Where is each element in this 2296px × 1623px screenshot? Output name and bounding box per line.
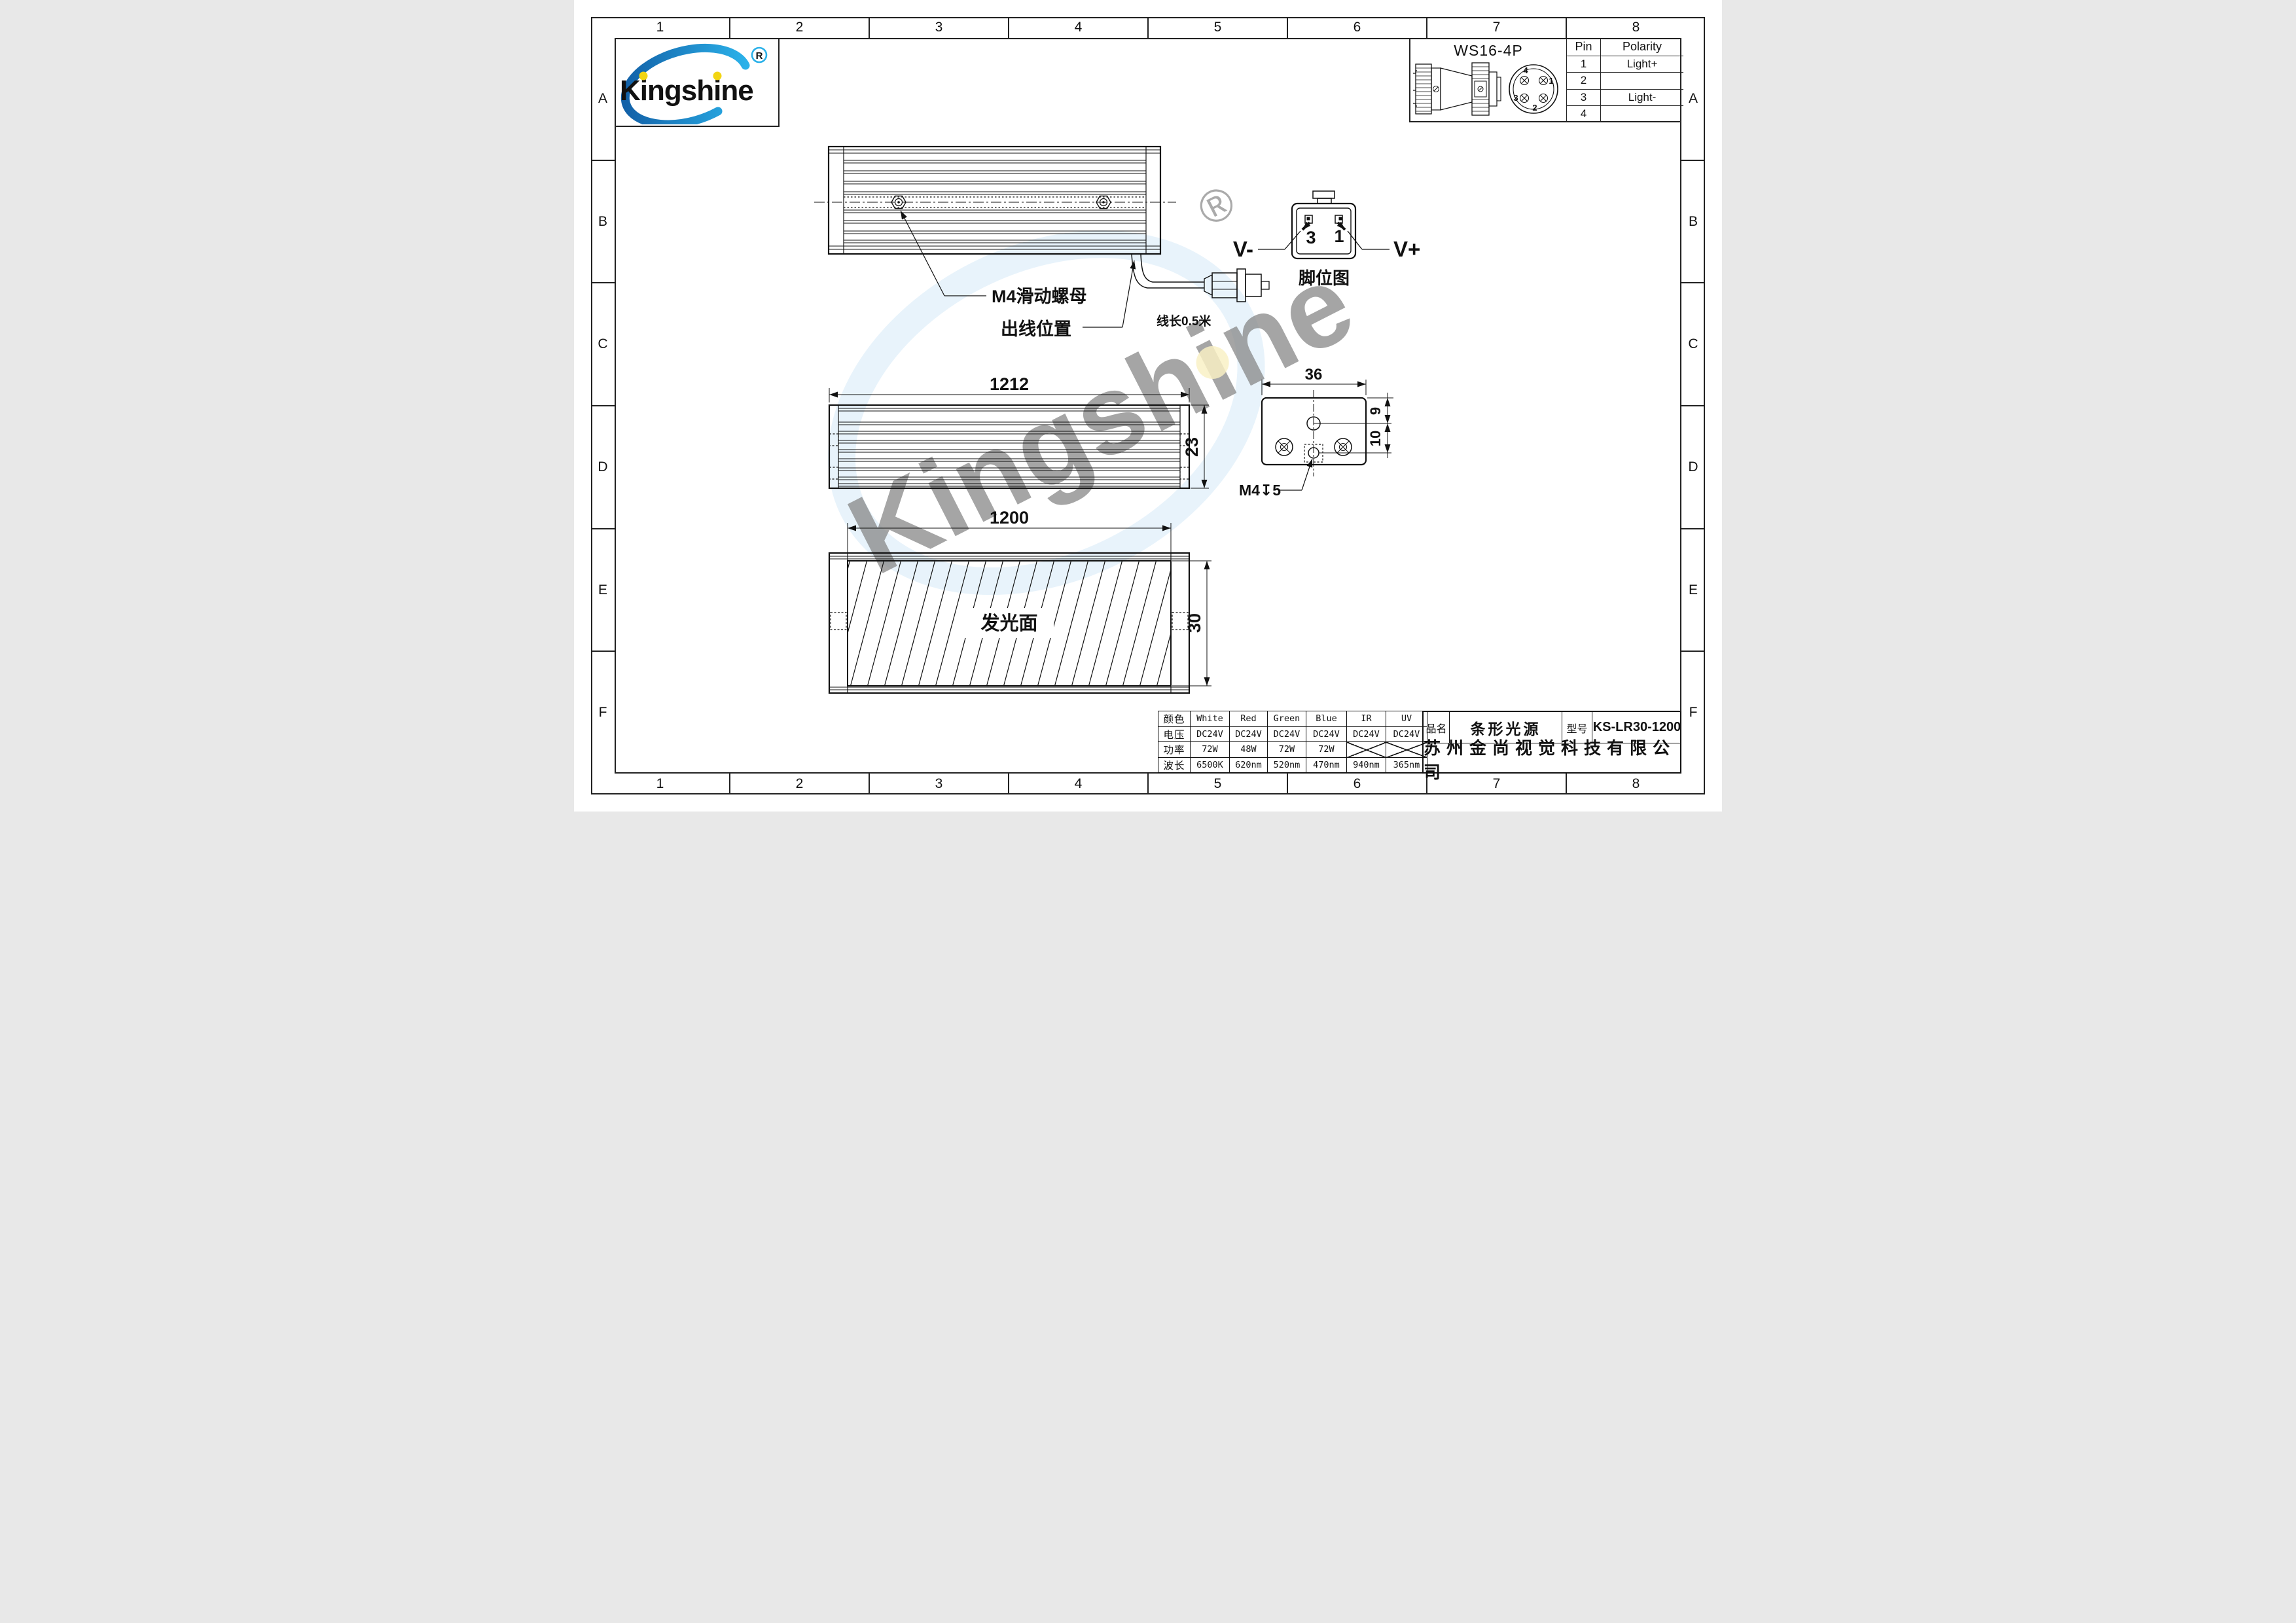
connector-title: WS16-4P xyxy=(1410,42,1566,60)
connector-detail-block: WS16-4P 4 1 3 xyxy=(1409,38,1681,122)
logo-i-dot xyxy=(639,72,648,80)
spec-cell: DC24V xyxy=(1191,726,1230,742)
connector-drawing: 4 1 3 2 xyxy=(1412,59,1566,122)
pin-number-cell: 2 xyxy=(1567,73,1601,89)
spec-cell: UV xyxy=(1386,711,1427,727)
thread-callout-text: M4↧5 xyxy=(1239,482,1281,499)
drawing-canvas: Kingshine ® xyxy=(615,38,1681,774)
logo-text: Kingshine xyxy=(620,75,753,107)
dim-23-text: 23 xyxy=(1182,437,1202,457)
svg-text:®: ® xyxy=(1190,175,1243,236)
spec-cell: DC24V xyxy=(1386,726,1427,742)
screw-hole xyxy=(1276,438,1293,455)
spec-cell: 470nm xyxy=(1306,757,1347,773)
registered-mark-letter: R xyxy=(756,50,763,62)
pin-diagram-drawing xyxy=(1258,191,1390,259)
nut-label: M4滑动螺母 xyxy=(992,287,1087,306)
pin-left-number: 3 xyxy=(1306,228,1316,247)
spec-row-label: 颜色 xyxy=(1158,711,1191,727)
spec-table: 颜色 White Red Green Blue IR UV 电压 DC24V D… xyxy=(1158,711,1427,773)
spec-row-color: 颜色 White Red Green Blue IR UV xyxy=(1158,711,1427,727)
polarity-cell: Light+ xyxy=(1601,56,1683,73)
pin-number-cell: 3 xyxy=(1567,90,1601,106)
logo-block: Kingshine R xyxy=(615,38,780,127)
spec-cell: Blue xyxy=(1306,711,1347,727)
dim-9-10 xyxy=(1367,393,1393,458)
spec-row-label: 波长 xyxy=(1158,757,1191,773)
face-pin-number: 4 xyxy=(1523,65,1528,75)
spec-cell-crossed xyxy=(1347,742,1386,758)
spec-row-wavelength: 波长 6500K 620nm 520nm 470nm 940nm 365nm xyxy=(1158,757,1427,773)
pin-polarity-table: Pin Polarity 1 Light+ 2 3 Light- 4 xyxy=(1566,38,1683,122)
polarity-cell xyxy=(1601,106,1683,122)
polarity-cell xyxy=(1601,73,1683,89)
spec-cell: IR xyxy=(1347,711,1386,727)
kingshine-logo: Kingshine R xyxy=(615,38,777,124)
v-minus-label: V- xyxy=(1233,237,1253,261)
spec-cell: 520nm xyxy=(1268,757,1306,773)
spec-cell: 365nm xyxy=(1386,757,1427,773)
pin-diagram-caption: 脚位图 xyxy=(1299,268,1350,288)
spec-cell: 72W xyxy=(1191,742,1230,758)
spec-cell: White xyxy=(1191,711,1230,727)
pin-number-cell: 4 xyxy=(1567,106,1601,122)
spec-cell: 72W xyxy=(1306,742,1347,758)
spec-row-voltage: 电压 DC24V DC24V DC24V DC24V DC24V DC24V xyxy=(1158,726,1427,742)
spec-row-power: 功率 72W 48W 72W 72W xyxy=(1158,742,1427,758)
spec-cell: DC24V xyxy=(1347,726,1386,742)
spec-cell: DC24V xyxy=(1268,726,1306,742)
pin-number-cell: 1 xyxy=(1567,56,1601,73)
dim-10-text: 10 xyxy=(1367,431,1384,446)
spec-cell: 48W xyxy=(1230,742,1268,758)
spec-cell: Green xyxy=(1268,711,1306,727)
spec-row-label: 电压 xyxy=(1158,726,1191,742)
spec-cell: DC24V xyxy=(1230,726,1268,742)
face-pin-number: 2 xyxy=(1532,103,1537,113)
spec-cell: Red xyxy=(1230,711,1268,727)
polarity-cell: Light- xyxy=(1601,90,1683,106)
pin-table-header: Polarity xyxy=(1601,38,1683,56)
light-face-label: 发光面 xyxy=(980,613,1037,634)
spec-cell: DC24V xyxy=(1306,726,1347,742)
thread-leader xyxy=(1280,459,1312,490)
drawing-sheet: 1 2 3 4 5 6 7 8 1 2 3 4 5 6 7 8 A B C D … xyxy=(574,0,1722,811)
v-plus-label: V+ xyxy=(1393,237,1420,261)
dim-30-text: 30 xyxy=(1185,613,1204,633)
spec-cell: 6500K xyxy=(1191,757,1230,773)
pin-table-header: Pin xyxy=(1567,38,1601,56)
company-name: 苏州金尚视觉科技有限公司 xyxy=(1424,743,1681,775)
outlet-label: 出线位置 xyxy=(1001,319,1071,339)
spec-cell-crossed xyxy=(1386,742,1427,758)
dim-1212-text: 1212 xyxy=(990,374,1029,394)
spec-row-label: 功率 xyxy=(1158,742,1191,758)
logo-i-dot xyxy=(713,72,722,80)
spec-cell: 72W xyxy=(1268,742,1306,758)
spec-cell: 620nm xyxy=(1230,757,1268,773)
dim-1200-text: 1200 xyxy=(990,508,1029,527)
title-block: 品名 条形光源 型号 KS-LR30-1200 苏州金尚视觉科技有限公司 xyxy=(1422,711,1681,774)
face-pins xyxy=(1520,77,1548,103)
dim-9-text: 9 xyxy=(1367,407,1384,415)
watermark-logo: Kingshine ® xyxy=(775,132,1399,652)
dim-36-text: 36 xyxy=(1305,366,1323,383)
spec-cell: 940nm xyxy=(1347,757,1386,773)
cable-length-label: 线长0.5米 xyxy=(1157,313,1211,329)
face-pin-number: 1 xyxy=(1549,76,1553,86)
pin-right-number: 1 xyxy=(1334,226,1344,246)
face-pin-number: 3 xyxy=(1513,93,1518,103)
